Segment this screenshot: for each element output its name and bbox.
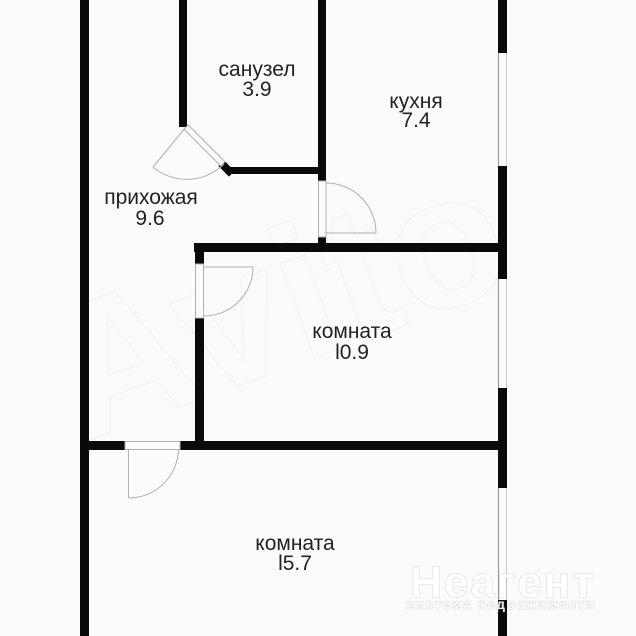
- svg-text:l0.9: l0.9: [335, 341, 369, 364]
- svg-text:система недвижимости: система недвижимости: [406, 597, 595, 612]
- svg-text:7.4: 7.4: [401, 109, 431, 132]
- svg-text:3.9: 3.9: [242, 78, 271, 101]
- svg-text:9.6: 9.6: [135, 207, 164, 230]
- svg-text:комната: комната: [312, 320, 392, 343]
- svg-text:прихожая: прихожая: [104, 186, 198, 209]
- svg-text:l5.7: l5.7: [278, 552, 312, 575]
